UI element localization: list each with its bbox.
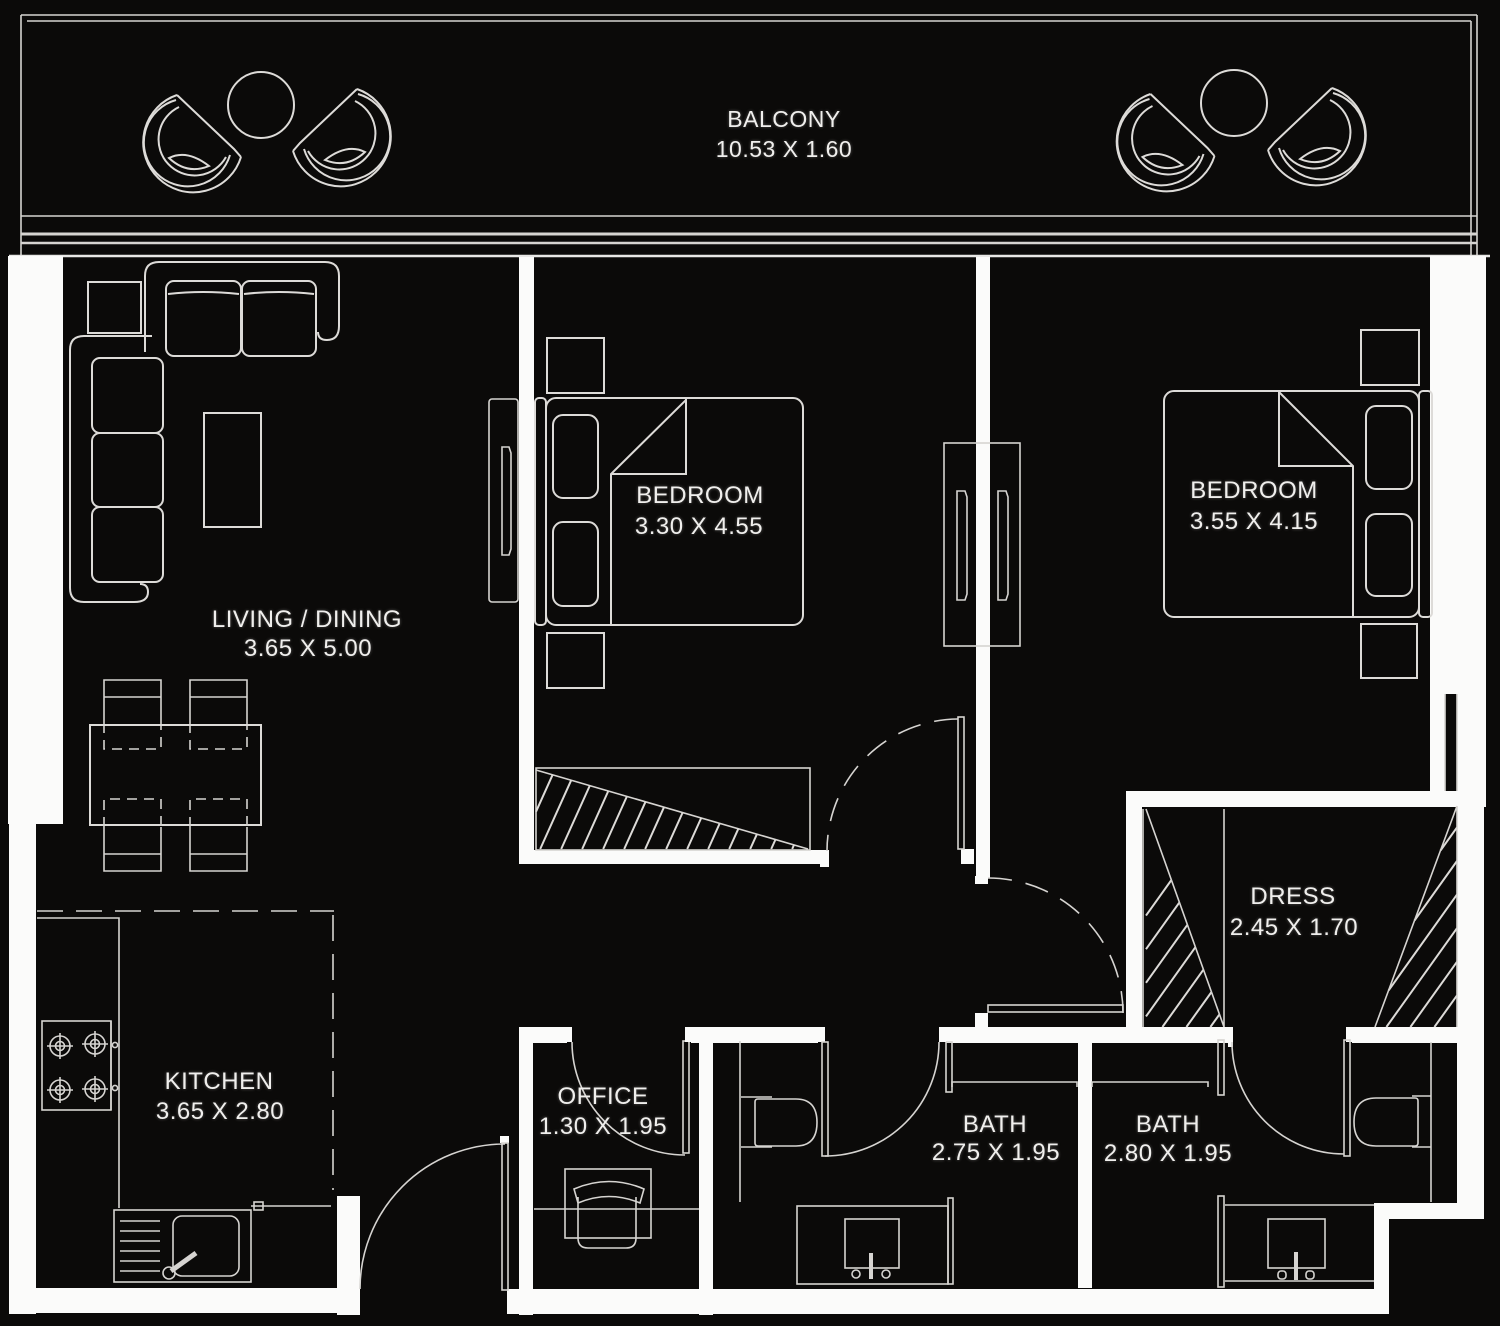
svg-text:10.53 X 1.60: 10.53 X 1.60 — [716, 136, 852, 162]
svg-text:LIVING / DINING: LIVING / DINING — [212, 606, 402, 633]
svg-text:3.30 X 4.55: 3.30 X 4.55 — [635, 513, 763, 540]
svg-text:OFFICE: OFFICE — [558, 1083, 649, 1110]
svg-text:3.65 X 5.00: 3.65 X 5.00 — [244, 635, 372, 662]
svg-text:BEDROOM: BEDROOM — [636, 482, 764, 509]
svg-text:1.30 X 1.95: 1.30 X 1.95 — [539, 1113, 667, 1140]
svg-text:DRESS: DRESS — [1250, 883, 1335, 910]
svg-text:2.75 X 1.95: 2.75 X 1.95 — [932, 1139, 1060, 1166]
svg-text:BATH: BATH — [1136, 1111, 1200, 1138]
svg-text:2.80 X 1.95: 2.80 X 1.95 — [1104, 1140, 1232, 1167]
svg-text:BEDROOM: BEDROOM — [1190, 477, 1318, 504]
svg-text:2.45 X 1.70: 2.45 X 1.70 — [1230, 914, 1358, 941]
svg-text:BATH: BATH — [963, 1111, 1027, 1138]
svg-text:KITCHEN: KITCHEN — [165, 1068, 274, 1095]
svg-text:BALCONY: BALCONY — [727, 106, 840, 132]
svg-text:3.65 X 2.80: 3.65 X 2.80 — [156, 1098, 284, 1125]
svg-text:3.55 X 4.15: 3.55 X 4.15 — [1190, 508, 1318, 535]
